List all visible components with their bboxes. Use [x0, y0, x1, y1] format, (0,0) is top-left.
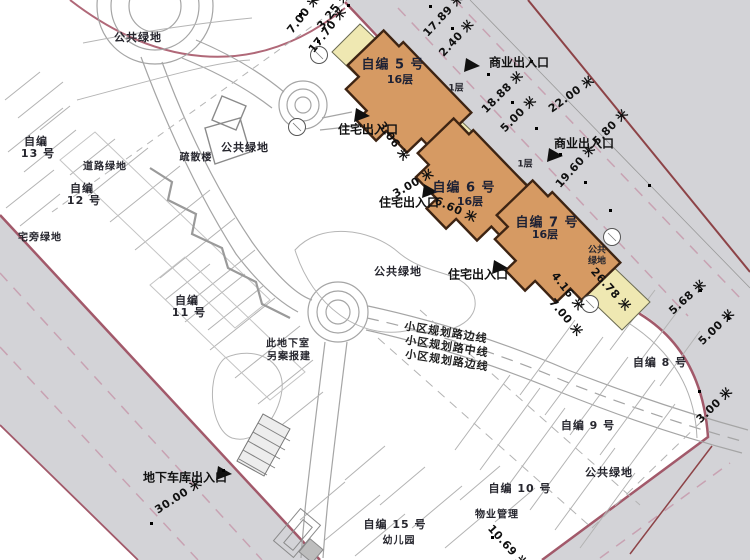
green-label-top: 公共绿地 [114, 29, 162, 45]
evac-stair-label: 疏散楼 [180, 149, 213, 164]
house-green-label: 宅旁绿地 [18, 229, 62, 244]
building-8-label: 自编 8 号 [633, 354, 687, 370]
green-label-southeast: 公共绿地 [585, 464, 633, 480]
green-label-mid: 公共绿地 [221, 139, 269, 155]
kindergarten-label: 幼儿园 [383, 532, 416, 547]
podium-floor-label: 1层 [448, 81, 463, 94]
property-mgmt-label: 物业管理 [475, 506, 519, 521]
building-10-label: 自编 10 号 [489, 480, 552, 496]
road-green-label: 道路绿地 [83, 158, 127, 173]
basement-note-line2: 另案报建 [267, 348, 311, 363]
podium-floor-label: 1层 [517, 157, 532, 170]
building-9-label: 自编 9 号 [561, 417, 615, 433]
plan-drawing [0, 0, 750, 560]
garage-ramp [237, 414, 290, 476]
building-12-label-line2: 12 号 [67, 192, 101, 208]
site-plan: 公共绿地 公共绿地 公共绿地 公共绿地 公共 绿地 道路绿地 宅旁绿地 疏散楼 … [0, 0, 750, 560]
building-11-label-line2: 11 号 [172, 304, 206, 320]
tower-5-name: 自编 5 号 [361, 54, 424, 73]
commercial-entrance-label: 商业出入口 [489, 54, 549, 71]
tower-5-floors: 16层 [387, 71, 413, 87]
residential-entrance-label: 住宅出入口 [448, 266, 508, 283]
green-label-center: 公共绿地 [374, 263, 422, 279]
tower-7-floors: 16层 [532, 226, 558, 242]
building-15-label: 自编 15 号 [364, 516, 427, 532]
building-13-label-line2: 13 号 [21, 145, 55, 161]
residential-entrance-label: 住宅出入口 [379, 194, 439, 211]
